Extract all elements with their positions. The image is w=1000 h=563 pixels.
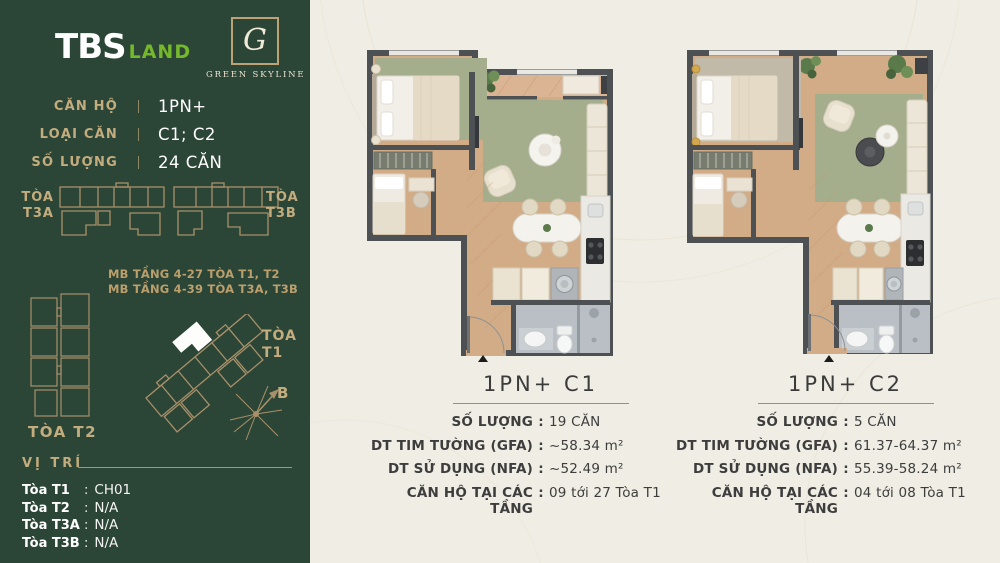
colon bbox=[533, 461, 549, 477]
tower-label-t1: TÒA T1 bbox=[262, 328, 302, 362]
spec-value: 04 tới 08 Tòa T1 bbox=[854, 485, 1000, 517]
location-divider bbox=[78, 467, 292, 468]
tower-label-line: TÒA bbox=[16, 190, 54, 206]
spec-row-floors: CĂN HỘ TẠI CÁC TẦNG 04 tới 08 Tòa T1 bbox=[673, 485, 1000, 517]
info-value: 1PN+ bbox=[158, 97, 296, 116]
monogram-g: G bbox=[243, 26, 267, 56]
spec-label: DT TIM TƯỜNG (GFA) bbox=[368, 438, 533, 454]
location-value: N/A bbox=[94, 518, 118, 534]
spec-label: DT SỬ DỤNG (NFA) bbox=[673, 461, 838, 477]
location-row-t3a: Tòa T3A N/A bbox=[22, 516, 296, 534]
location-list: Tòa T1 CH01 Tòa T2 N/A Tòa T3A N/A Tòa T… bbox=[22, 481, 296, 551]
monogram-frame: G bbox=[231, 17, 279, 65]
unit-spec-c2: 1PN+ C2 SỐ LƯỢNG 5 CĂN DT TIM TƯỜNG (GFA… bbox=[673, 372, 1000, 524]
spec-label: CĂN HỘ TẠI CÁC TẦNG bbox=[673, 485, 838, 517]
spec-row-nfa: DT SỬ DỤNG (NFA) 55.39-58.24 m² bbox=[673, 461, 1000, 477]
location-title: VỊ TRÍ bbox=[22, 456, 83, 471]
divider-line bbox=[138, 156, 139, 169]
tower-label-t2: TÒA T2 bbox=[28, 423, 97, 441]
colon bbox=[84, 516, 94, 534]
spec-label: DT SỬ DỤNG (NFA) bbox=[368, 461, 533, 477]
location-row-t2: Tòa T2 N/A bbox=[22, 499, 296, 517]
land-logo-text: LAND bbox=[129, 41, 191, 63]
colon bbox=[838, 461, 854, 477]
spec-value: 61.37-64.37 m² bbox=[854, 438, 1000, 454]
project-logo: G GREEN SKYLINE bbox=[206, 17, 304, 80]
spec-row-gfa: DT TIM TƯỜNG (GFA) ~58.34 m² bbox=[368, 438, 713, 454]
tower-label-line: T3A bbox=[16, 206, 54, 222]
floorplate-notes: MB TẦNG 4-27 TÒA T1, T2 MB TẦNG 4-39 TÒA… bbox=[108, 267, 298, 297]
tower-label-t3a: TÒA T3A bbox=[16, 190, 54, 222]
title-underline bbox=[453, 403, 629, 404]
location-label: Tòa T1 bbox=[22, 483, 84, 499]
tbs-logo-text: TBS bbox=[55, 30, 126, 64]
highlighted-unit bbox=[172, 322, 212, 361]
tower-diagram-t3a-svg bbox=[58, 182, 170, 240]
spec-value: 55.39-58.24 m² bbox=[854, 461, 1000, 477]
tower-label-t3b: TÒA T3B bbox=[266, 190, 306, 222]
info-value: C1; C2 bbox=[158, 125, 296, 144]
floorplate-note: MB TẦNG 4-27 TÒA T1, T2 bbox=[108, 267, 298, 282]
brochure-page: TBS LAND G GREEN SKYLINE CĂN HỘ 1PN+ LOẠ… bbox=[0, 0, 1000, 563]
info-row-can-ho: CĂN HỘ 1PN+ bbox=[22, 92, 296, 120]
info-row-so-luong: SỐ LƯỢNG 24 CĂN bbox=[22, 148, 296, 176]
title-underline bbox=[758, 403, 934, 404]
spec-label: DT TIM TƯỜNG (GFA) bbox=[673, 438, 838, 454]
colon bbox=[533, 485, 549, 517]
spec-row-quantity: SỐ LƯỢNG 19 CĂN bbox=[368, 414, 713, 430]
spec-row-nfa: DT SỬ DỤNG (NFA) ~52.49 m² bbox=[368, 461, 713, 477]
spec-row-floors: CĂN HỘ TẠI CÁC TẦNG 09 tới 27 Tòa T1 bbox=[368, 485, 713, 517]
project-name: GREEN SKYLINE bbox=[206, 70, 304, 80]
divider-line bbox=[138, 100, 139, 113]
unit-spec-c1: 1PN+ C1 SỐ LƯỢNG 19 CĂN DT TIM TƯỜNG (GF… bbox=[368, 372, 713, 524]
location-row-t3b: Tòa T3B N/A bbox=[22, 534, 296, 552]
compass-north-label: B bbox=[277, 384, 288, 402]
unit-info-table: CĂN HỘ 1PN+ LOẠI CĂN C1; C2 SỐ LƯỢNG 24 … bbox=[22, 92, 296, 176]
location-row-t1: Tòa T1 CH01 bbox=[22, 481, 296, 499]
info-label: LOẠI CĂN bbox=[22, 127, 118, 142]
location-value: N/A bbox=[94, 536, 118, 552]
colon bbox=[838, 414, 854, 430]
floor-plan-c1-svg bbox=[367, 50, 613, 362]
sidebar: TBS LAND G GREEN SKYLINE CĂN HỘ 1PN+ LOẠ… bbox=[0, 0, 310, 563]
info-label: CĂN HỘ bbox=[22, 99, 118, 114]
location-value: N/A bbox=[94, 501, 118, 517]
spec-row-gfa: DT TIM TƯỜNG (GFA) 61.37-64.37 m² bbox=[673, 438, 1000, 454]
info-row-loai-can: LOẠI CĂN C1; C2 bbox=[22, 120, 296, 148]
divider-line bbox=[138, 128, 139, 141]
location-label: Tòa T2 bbox=[22, 501, 84, 517]
colon bbox=[84, 481, 94, 499]
tower-diagram-t2-svg bbox=[28, 292, 92, 422]
location-label: Tòa T3B bbox=[22, 536, 84, 552]
entry-arrow bbox=[824, 355, 834, 362]
tower-label-line: TÒA bbox=[262, 328, 302, 345]
tower-label-line: TÒA bbox=[266, 190, 306, 206]
spec-label: CĂN HỘ TẠI CÁC TẦNG bbox=[368, 485, 533, 517]
spec-value: 5 CĂN bbox=[854, 414, 1000, 430]
colon bbox=[838, 438, 854, 454]
spec-label: SỐ LƯỢNG bbox=[368, 414, 533, 430]
info-value: 24 CĂN bbox=[158, 153, 296, 172]
unit-title: 1PN+ C1 bbox=[368, 372, 713, 396]
unit-title: 1PN+ C2 bbox=[673, 372, 1000, 396]
spec-row-quantity: SỐ LƯỢNG 5 CĂN bbox=[673, 414, 1000, 430]
colon bbox=[533, 414, 549, 430]
location-value: CH01 bbox=[94, 483, 131, 499]
tower-label-line: T3B bbox=[266, 206, 306, 222]
location-label: Tòa T3A bbox=[22, 518, 84, 534]
colon bbox=[838, 485, 854, 517]
entry-arrow bbox=[478, 355, 488, 362]
tower-label-line: T1 bbox=[262, 345, 302, 362]
spec-label: SỐ LƯỢNG bbox=[673, 414, 838, 430]
colon bbox=[84, 534, 94, 552]
floor-plan-c2-svg bbox=[687, 50, 933, 362]
floorplate-note: MB TẦNG 4-39 TÒA T3A, T3B bbox=[108, 282, 298, 297]
colon bbox=[84, 499, 94, 517]
tbs-land-logo: TBS LAND bbox=[55, 30, 191, 64]
info-label: SỐ LƯỢNG bbox=[22, 155, 118, 170]
colon bbox=[533, 438, 549, 454]
